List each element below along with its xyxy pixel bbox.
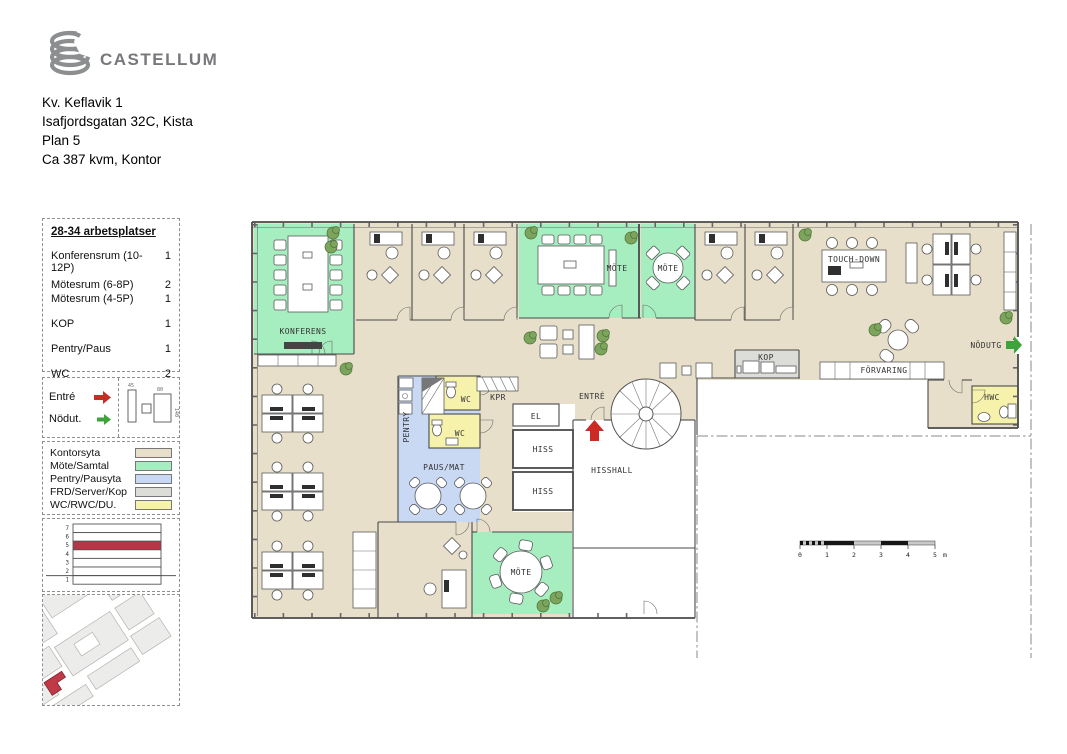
room-label-kop: KOP <box>758 353 774 362</box>
scale-tick: 4 <box>906 551 910 559</box>
room-label-wc-a: WC <box>461 395 471 404</box>
room-label-kpr: KPR <box>490 393 506 402</box>
scale-tick: 1 <box>825 551 829 559</box>
floor-plan: KONFERENS MÖTE MÖTE TOUCH-DOWN KOP FÖRVA… <box>0 0 1067 754</box>
room-label-touchdown: TOUCH-DOWN <box>828 255 880 264</box>
room-label-forvaring: FÖRVARING <box>861 365 908 375</box>
room-label-paus: PAUS/MAT <box>423 463 465 472</box>
room-label-pentry: PENTRY <box>402 411 411 442</box>
scale-tick: 5 <box>933 551 937 559</box>
spiral-stair <box>611 379 681 449</box>
room-label-mote-c: MÖTE <box>511 567 532 577</box>
room-label-hwc: HWC <box>984 393 1000 402</box>
room-label-konferens: KONFERENS <box>280 327 327 336</box>
scale-bar: 0 1 2 3 4 5 m <box>798 541 947 559</box>
kpr-rack <box>477 377 518 391</box>
room-label-mote-a: MÖTE <box>607 263 628 273</box>
room-label-el: EL <box>531 412 541 421</box>
floorplan-page: CASTELLUM Kv. Keflavik 1 Isafjordsgatan … <box>0 0 1067 754</box>
room-label-hiss-a: HISS <box>533 445 554 454</box>
scale-tick: 2 <box>852 551 856 559</box>
room-label-nodutg: NÖDUTG <box>970 340 1001 350</box>
scale-tick: 3 <box>879 551 883 559</box>
scale-unit: m <box>943 551 947 559</box>
room-label-hisshall: HISSHALL <box>591 466 633 475</box>
room-label-hiss-b: HISS <box>533 487 554 496</box>
room-label-wc-b: WC <box>455 429 465 438</box>
scale-tick: 0 <box>798 551 802 559</box>
room-label-mote-b: MÖTE <box>658 263 679 273</box>
room-label-entre: ENTRÉ <box>579 390 605 401</box>
